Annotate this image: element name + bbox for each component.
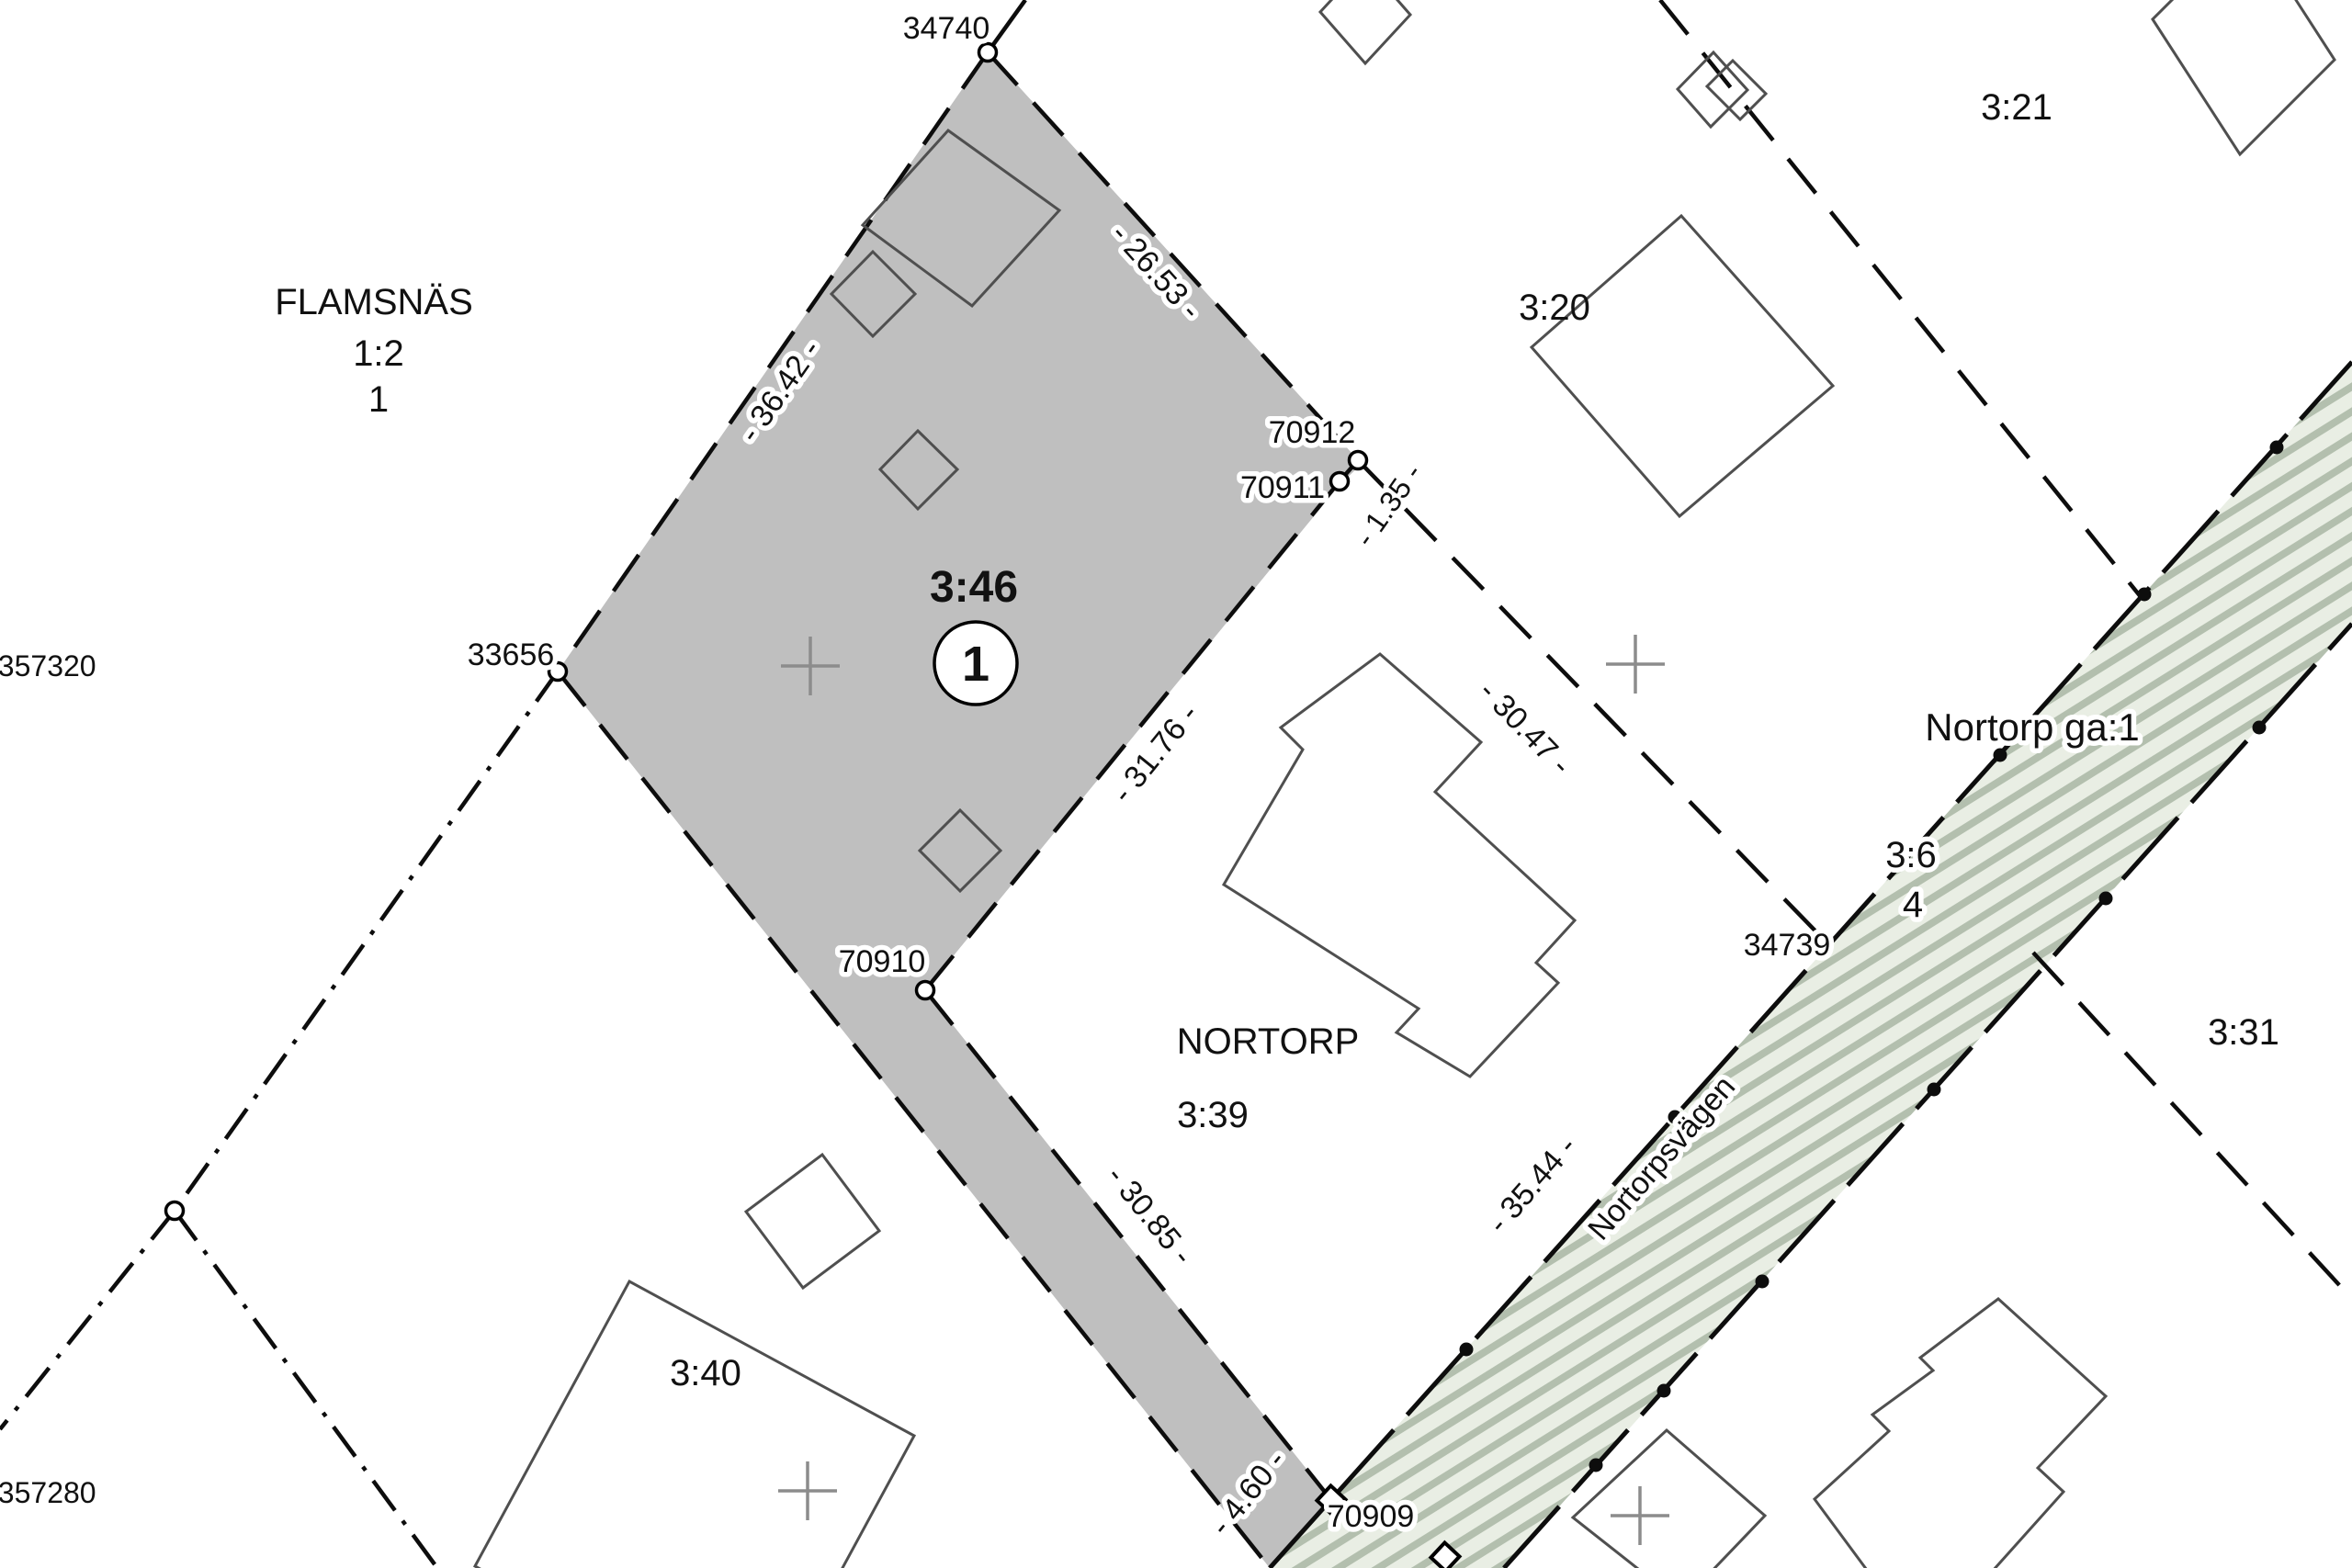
road-edge-dot — [1994, 749, 2007, 762]
boundary-point-70910 — [917, 982, 934, 999]
road-edge-dot — [2138, 588, 2152, 602]
point-label-33656: 33656 — [468, 637, 555, 672]
grid-coord-6357280: 6357280 — [0, 1476, 96, 1509]
road-edge-dot — [2253, 721, 2267, 735]
boundary-point-70912 — [1350, 452, 1367, 469]
label-nortorp: NORTORP — [1177, 1021, 1360, 1062]
boundary-point-70911 — [1331, 473, 1349, 491]
road-edge-dot — [2270, 441, 2284, 455]
lot-badge-number: 1 — [962, 637, 989, 692]
parcel-label-3-6-lot: 4 — [1903, 885, 1923, 925]
road-edge-dot — [1657, 1384, 1671, 1398]
parcel-label-3-31: 3:31 — [2208, 1012, 2279, 1053]
map-canvas: 34740FLAMSNÄS1:213:213:207091270911- 1.3… — [0, 0, 2352, 1568]
boundary-point-junction — [166, 1202, 184, 1220]
label-nortorp-ga-1: Nortorp ga:1 — [1925, 705, 2139, 749]
parcel-label-3-6: 3:6 — [1885, 835, 1937, 875]
road-edge-dot — [1589, 1459, 1603, 1472]
parcel-label-flamsnas-lot: 1 — [368, 379, 389, 420]
point-label-70912: 70912 — [1269, 415, 1356, 450]
parcel-label-3-40: 3:40 — [670, 1353, 741, 1393]
parcel-label-3-39: 3:39 — [1177, 1095, 1249, 1135]
parcel-label-3-46: 3:46 — [930, 563, 1018, 612]
point-label-70909: 70909 — [1328, 1499, 1415, 1534]
point-label-70910: 70910 — [839, 944, 926, 979]
map-viewport: 34740FLAMSNÄS1:213:213:207091270911- 1.3… — [0, 0, 2352, 1568]
road-edge-dot — [2099, 892, 2113, 906]
parcel-label-3-20: 3:20 — [1519, 288, 1590, 328]
grid-coord-6357320: 6357320 — [0, 649, 96, 682]
parcel-label-flamsnas-num: 1:2 — [353, 333, 404, 374]
parcel-label-3-21: 3:21 — [1981, 87, 2052, 128]
parcel-label-flamsnas: FLAMSNÄS — [275, 282, 473, 322]
point-label-70911: 70911 — [1240, 470, 1325, 505]
point-label-34740: 34740 — [903, 11, 990, 46]
point-label-34739: 34739 — [1744, 928, 1831, 963]
road-edge-dot — [1460, 1343, 1474, 1357]
road-edge-dot — [1756, 1275, 1770, 1289]
boundary-point-34740 — [979, 44, 997, 62]
road-edge-dot — [1928, 1083, 1941, 1097]
